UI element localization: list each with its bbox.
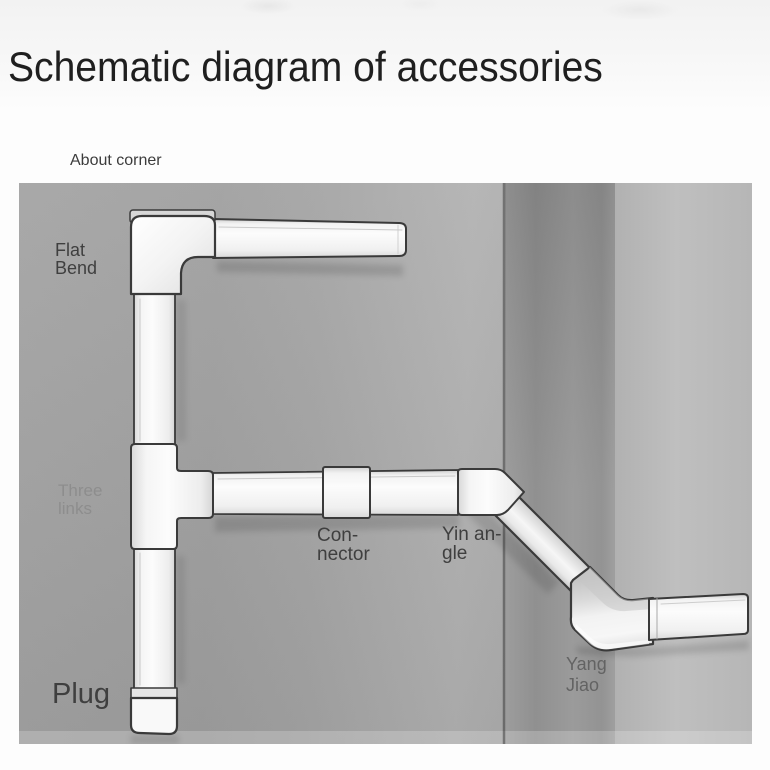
label-connector: Con- nector bbox=[317, 526, 370, 565]
accessories-photo: Flat Bend Three links Con- nector Yin an… bbox=[19, 183, 752, 744]
plug-collar bbox=[131, 688, 177, 698]
label-yang-jiao-line2: Jiao bbox=[566, 675, 607, 696]
label-flat-bend-line2: Bend bbox=[55, 259, 97, 277]
label-plug-text: Plug bbox=[52, 680, 110, 710]
label-three-links-line1: Three bbox=[58, 482, 102, 500]
flat-bend-piece bbox=[131, 216, 215, 294]
label-three-links: Three links bbox=[58, 482, 102, 518]
label-connector-line2: nector bbox=[317, 545, 370, 564]
photo-caption: About corner bbox=[70, 152, 162, 170]
plug-cap bbox=[131, 698, 177, 734]
label-flat-bend-line1: Flat bbox=[55, 241, 97, 259]
trunking-diagram bbox=[19, 183, 752, 744]
label-yin-angle-line1: Yin an- bbox=[442, 525, 502, 544]
label-flat-bend: Flat Bend bbox=[55, 241, 97, 277]
top-horizontal-duct bbox=[213, 219, 406, 258]
connector-sleeve bbox=[323, 467, 370, 518]
label-yin-angle: Yin an- gle bbox=[442, 525, 502, 564]
label-plug: Plug bbox=[52, 680, 110, 710]
label-yin-angle-line2: gle bbox=[442, 544, 502, 563]
label-connector-line1: Con- bbox=[317, 526, 370, 545]
label-three-links-line2: links bbox=[58, 500, 102, 518]
label-yang-jiao-line1: Yang bbox=[566, 654, 607, 675]
label-yang-jiao: Yang Jiao bbox=[566, 654, 607, 696]
tee-piece bbox=[131, 444, 213, 549]
page-title: Schematic diagram of accessories bbox=[8, 44, 603, 90]
